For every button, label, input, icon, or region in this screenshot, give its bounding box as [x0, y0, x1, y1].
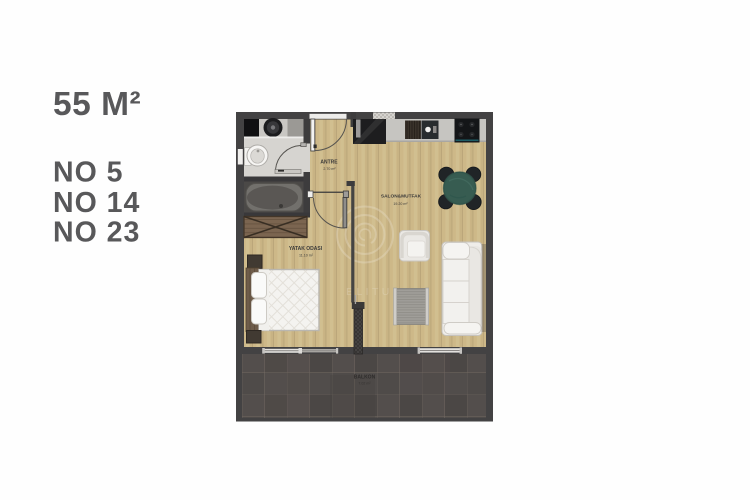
- svg-text:19.20 m²: 19.20 m²: [393, 202, 408, 206]
- svg-text:2.70 m²: 2.70 m²: [323, 167, 336, 171]
- svg-text:NO 14: NO 14: [53, 187, 140, 219]
- svg-text:55 M²: 55 M²: [53, 86, 141, 123]
- svg-text:7.02 m²: 7.02 m²: [358, 382, 371, 386]
- svg-text:11.10 m²: 11.10 m²: [299, 254, 314, 258]
- svg-text:BALKON: BALKON: [354, 374, 376, 380]
- svg-text:SALON&MUTFAK: SALON&MUTFAK: [381, 194, 422, 200]
- svg-text:ANTRE: ANTRE: [320, 160, 338, 166]
- svg-text:NO 5: NO 5: [53, 157, 124, 189]
- svg-text:NO 23: NO 23: [53, 216, 140, 248]
- svg-text:YATAK ODASI: YATAK ODASI: [289, 246, 323, 252]
